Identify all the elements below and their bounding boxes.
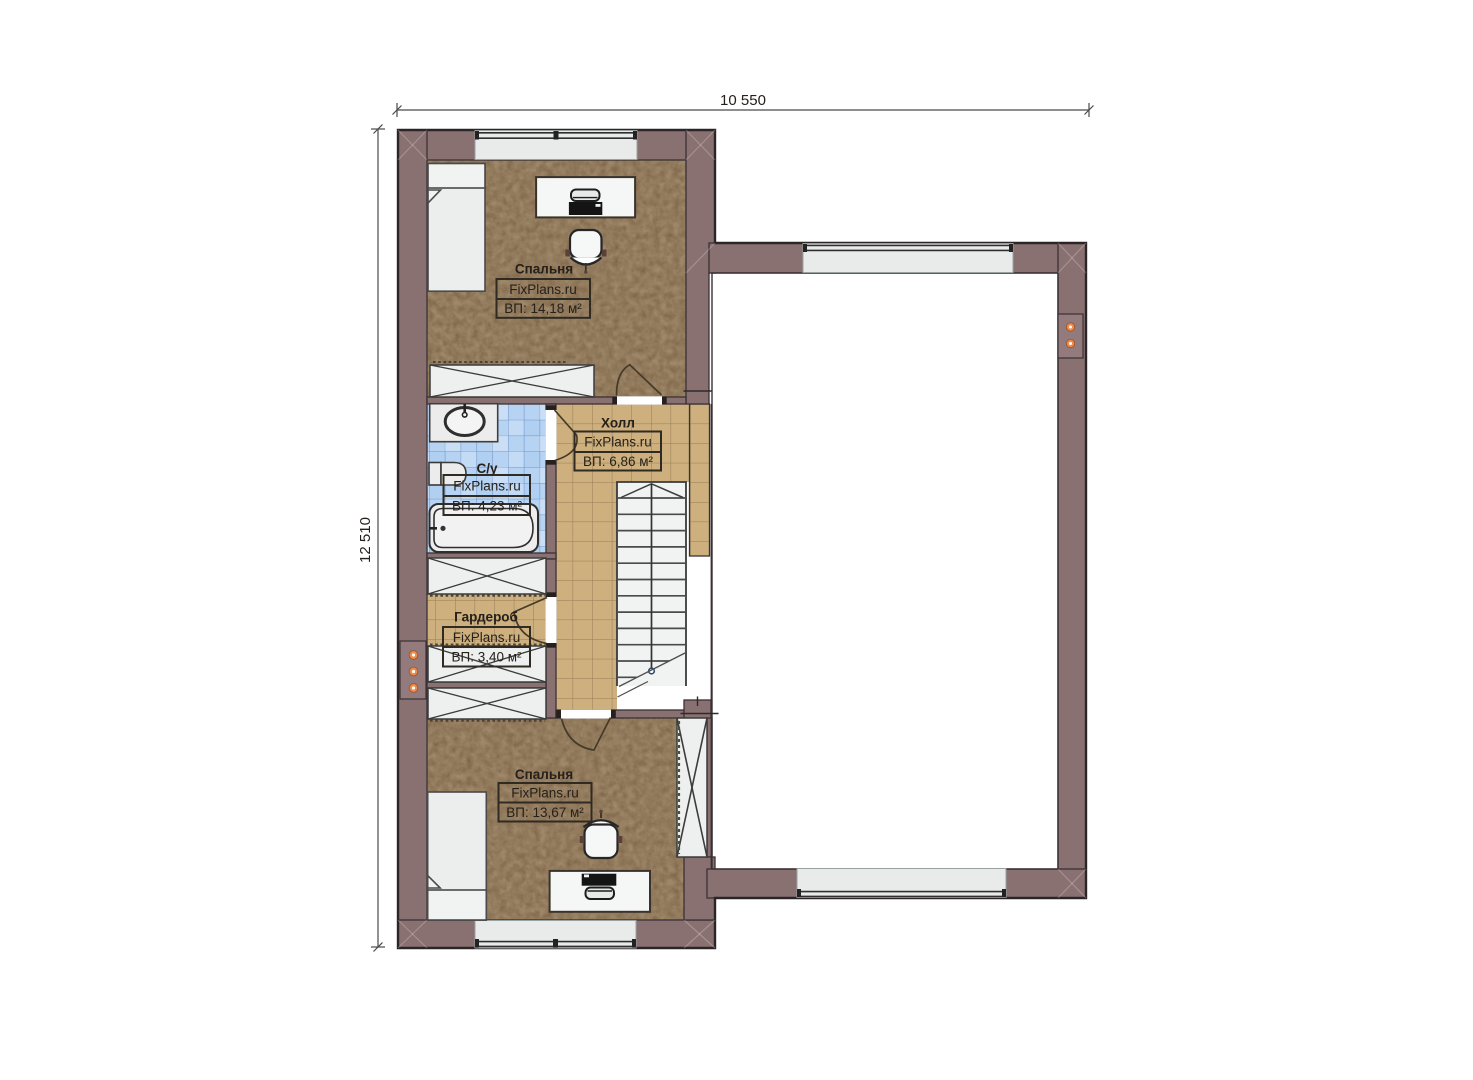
svg-text:ВП: 13,67 м²: ВП: 13,67 м² xyxy=(506,805,584,820)
svg-text:FixPlans.ru: FixPlans.ru xyxy=(509,282,577,297)
svg-text:С/у: С/у xyxy=(476,461,498,476)
svg-text:Холл: Холл xyxy=(601,416,635,431)
svg-text:ВП: 3,40 м²: ВП: 3,40 м² xyxy=(451,650,522,665)
svg-text:10 550: 10 550 xyxy=(720,92,766,109)
svg-text:FixPlans.ru: FixPlans.ru xyxy=(453,630,521,645)
svg-text:FixPlans.ru: FixPlans.ru xyxy=(453,479,521,494)
svg-text:Гардероб: Гардероб xyxy=(454,610,518,625)
svg-text:ВП: 6,86 м²: ВП: 6,86 м² xyxy=(583,454,654,469)
svg-text:FixPlans.ru: FixPlans.ru xyxy=(511,786,579,801)
svg-text:FixPlans.ru: FixPlans.ru xyxy=(584,435,652,450)
svg-text:12 510: 12 510 xyxy=(357,517,374,563)
svg-text:Спальня: Спальня xyxy=(515,767,573,782)
svg-text:Спальня: Спальня xyxy=(515,262,573,277)
svg-text:ВП: 14,18 м²: ВП: 14,18 м² xyxy=(504,301,582,316)
svg-text:ВП: 4,23 м²: ВП: 4,23 м² xyxy=(452,499,523,514)
